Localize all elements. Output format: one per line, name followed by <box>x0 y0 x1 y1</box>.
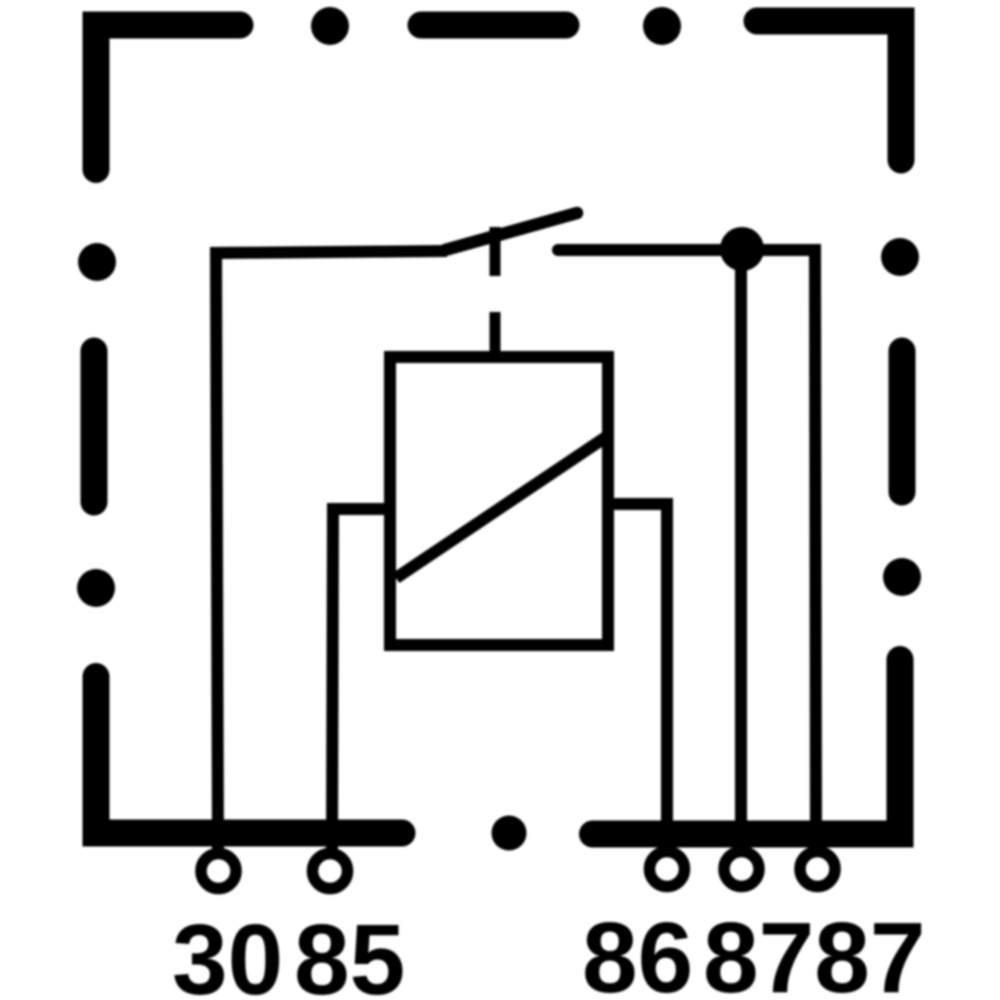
svg-text:30: 30 <box>172 904 283 1000</box>
svg-text:8787: 8787 <box>703 902 925 1000</box>
svg-text:86: 86 <box>582 902 693 1000</box>
svg-text:85: 85 <box>294 904 405 1000</box>
